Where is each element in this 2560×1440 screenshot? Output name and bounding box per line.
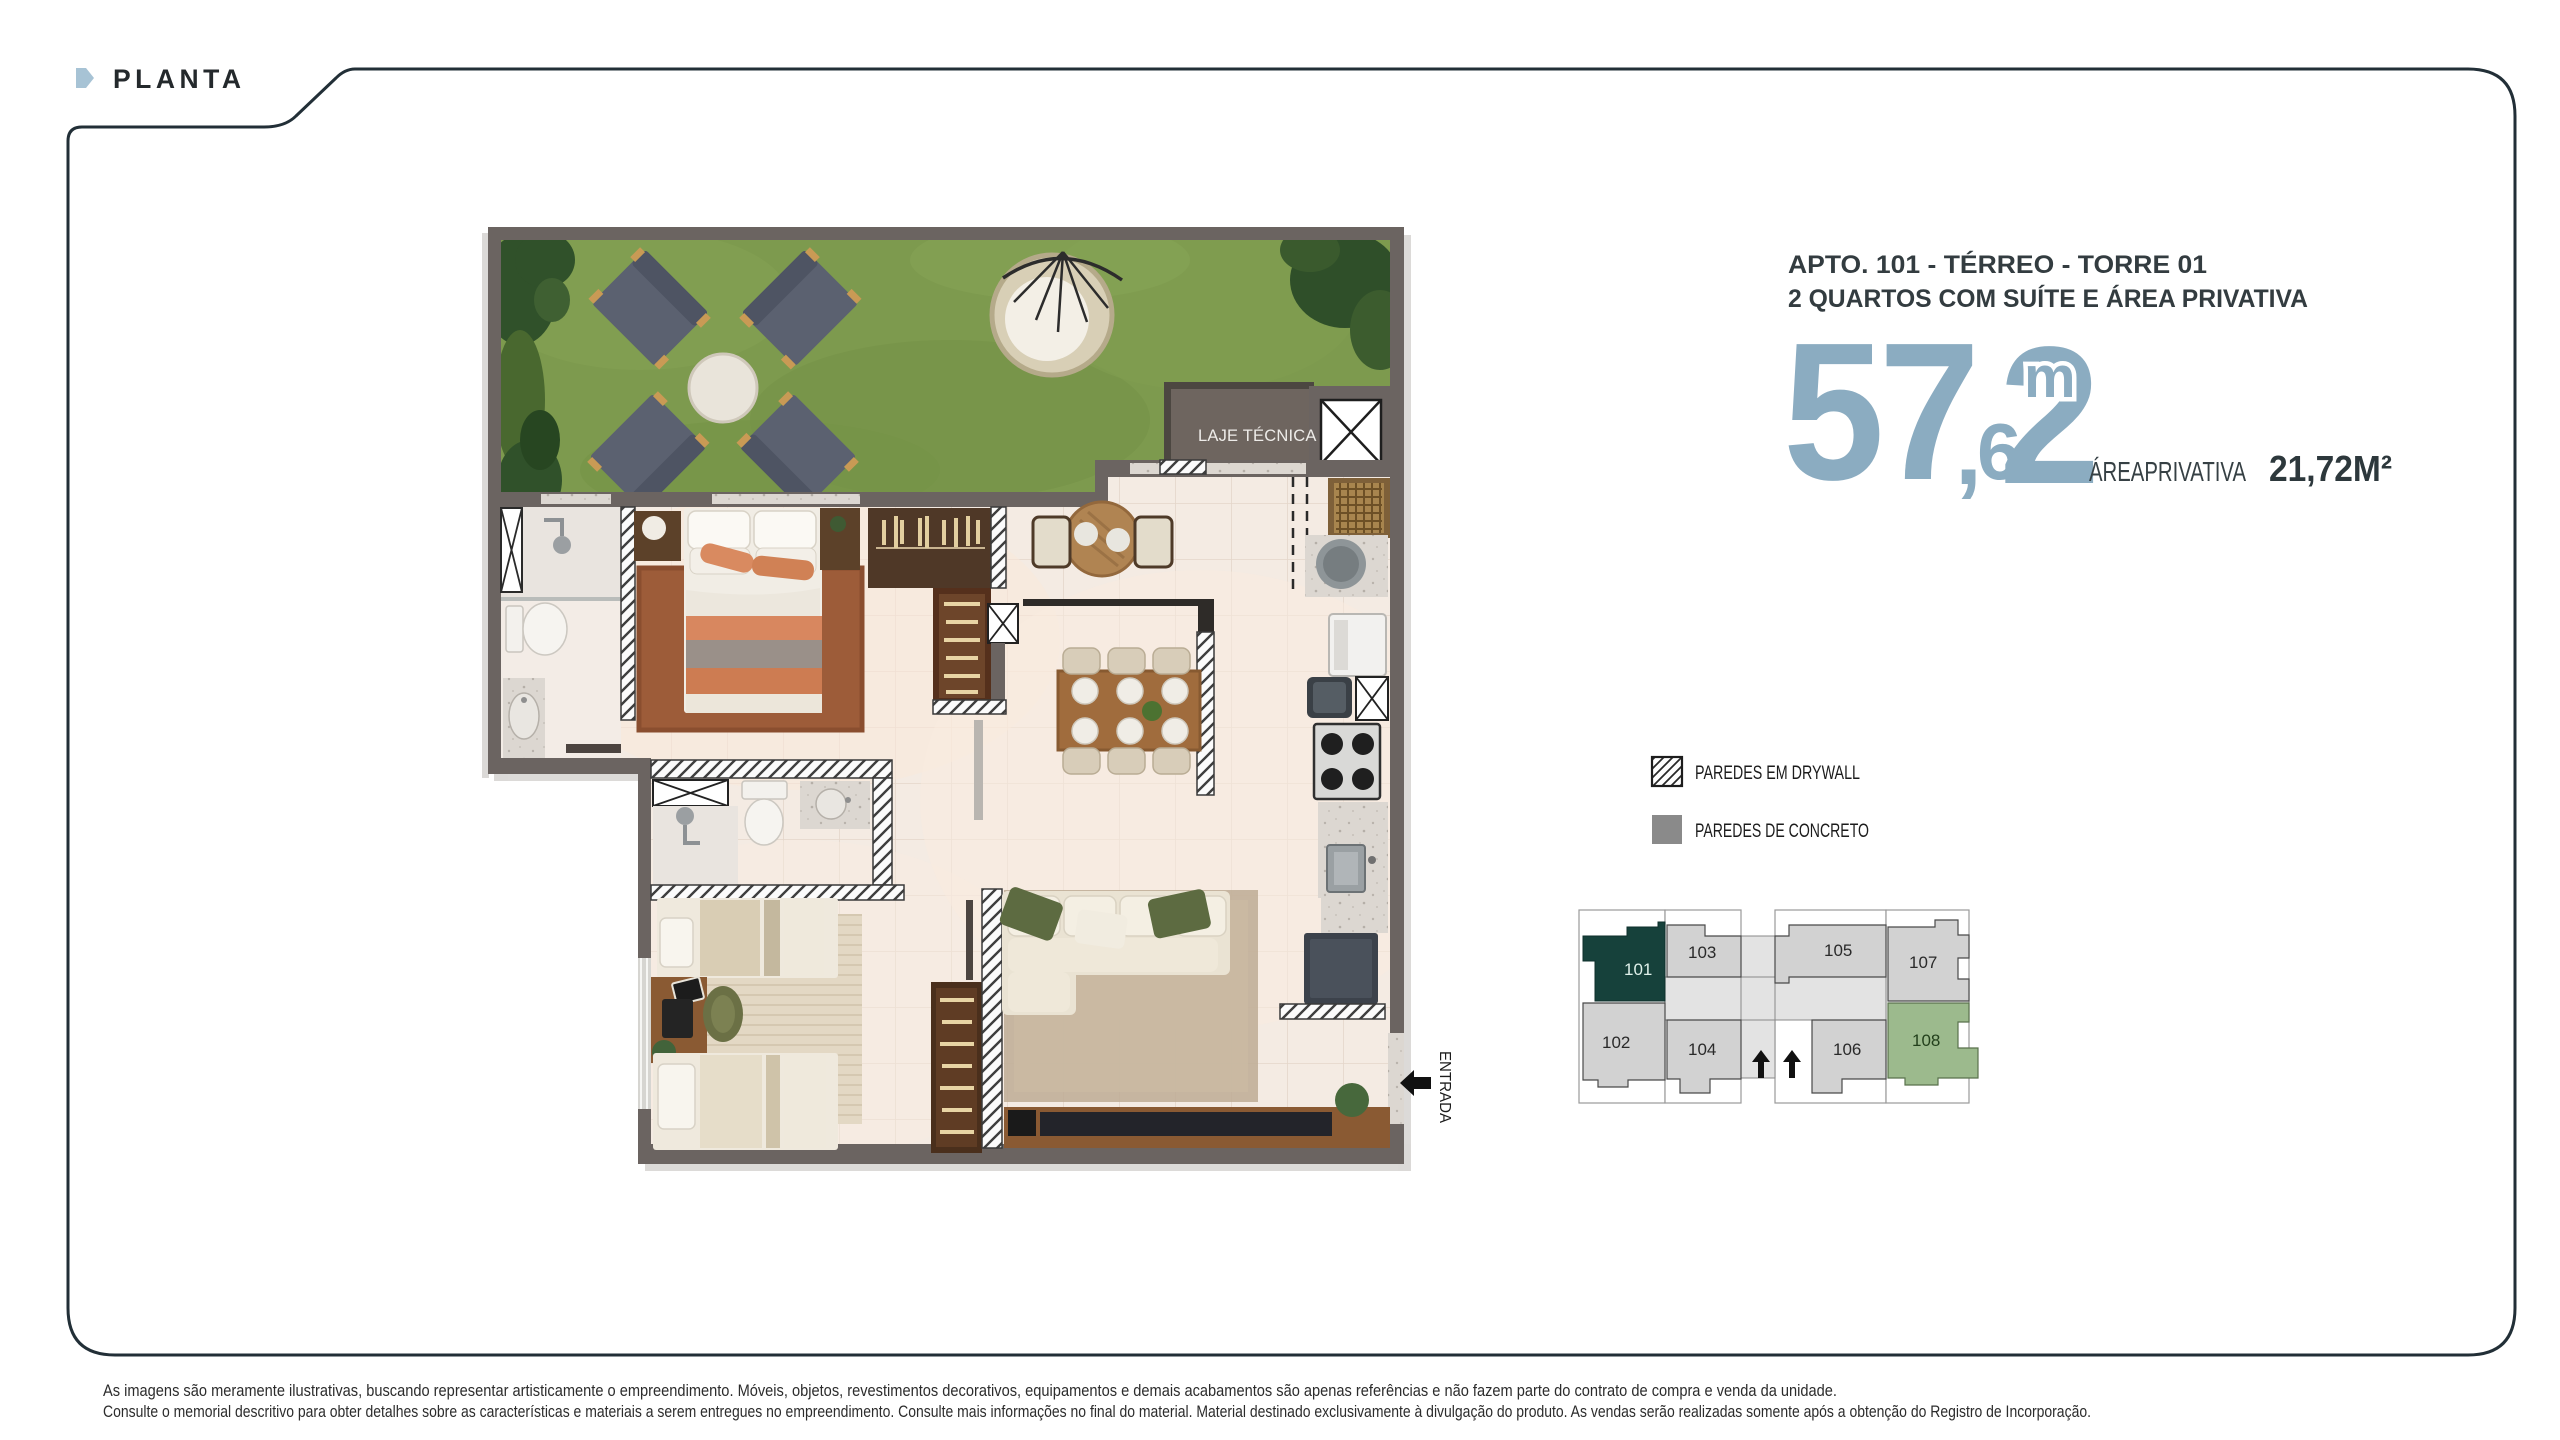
svg-text:APTO. 101 - TÉRREO - TORRE 01: APTO. 101 - TÉRREO - TORRE 01 <box>1788 250 2207 279</box>
svg-text:106: 106 <box>1833 1040 1861 1059</box>
svg-text:103: 103 <box>1688 943 1716 962</box>
svg-text:102: 102 <box>1602 1033 1630 1052</box>
svg-text:PAREDES DE CONCRETO: PAREDES DE CONCRETO <box>1695 820 1869 842</box>
svg-text:21,72M²: 21,72M² <box>2269 448 2392 489</box>
svg-text:108: 108 <box>1912 1031 1940 1050</box>
svg-text:Consulte o memorial descritivo: Consulte o memorial descritivo para obte… <box>103 1403 2091 1421</box>
svg-text:ENTRADA: ENTRADA <box>1436 1051 1453 1123</box>
svg-text:PAREDES EM DRYWALL: PAREDES EM DRYWALL <box>1695 762 1860 784</box>
svg-text:LAJE TÉCNICA: LAJE TÉCNICA <box>1198 426 1317 445</box>
svg-text:101: 101 <box>1624 960 1652 979</box>
svg-text:As imagens são meramente ilust: As imagens são meramente ilustrativas, b… <box>103 1382 1837 1400</box>
svg-text:ÁREAPRIVATIVA: ÁREAPRIVATIVA <box>2089 456 2246 487</box>
svg-text:57: 57 <box>1783 303 1975 522</box>
svg-text:PLANTA: PLANTA <box>113 64 246 94</box>
svg-text:104: 104 <box>1688 1040 1716 1059</box>
svg-text:2: 2 <box>1999 307 2100 526</box>
svg-text:m: m <box>2024 345 2076 410</box>
svg-text:107: 107 <box>1909 953 1937 972</box>
svg-text:105: 105 <box>1824 941 1852 960</box>
